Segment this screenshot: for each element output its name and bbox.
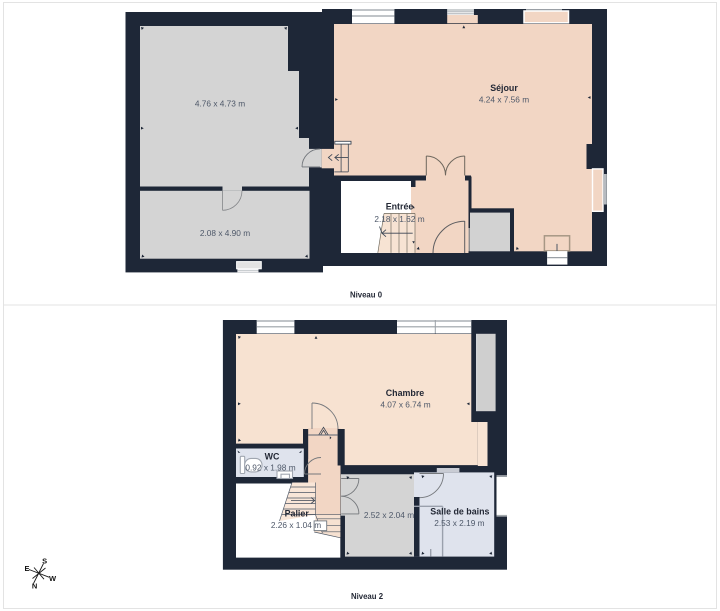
svg-text:Séjour: Séjour (490, 83, 518, 93)
svg-text:4.07 x 6.74 m: 4.07 x 6.74 m (380, 399, 430, 409)
svg-text:0.92 x 1.98 m: 0.92 x 1.98 m (245, 463, 295, 473)
svg-text:S: S (42, 556, 47, 565)
svg-text:Entrée: Entrée (386, 202, 414, 212)
svg-text:4.24 x 7.56 m: 4.24 x 7.56 m (479, 94, 529, 104)
svg-text:Niveau 0: Niveau 0 (350, 290, 383, 299)
svg-text:Niveau 2: Niveau 2 (351, 592, 384, 601)
svg-text:2.26 x 1.04 m: 2.26 x 1.04 m (271, 520, 321, 530)
svg-text:E: E (24, 564, 29, 573)
svg-text:2.52 x 2.04 m: 2.52 x 2.04 m (364, 510, 414, 520)
svg-text:Chambre: Chambre (386, 388, 425, 398)
svg-text:4.76 x 4.73 m: 4.76 x 4.73 m (195, 99, 245, 109)
svg-text:Salle de bains: Salle de bains (430, 507, 489, 517)
svg-text:2.08 x 4.90 m: 2.08 x 4.90 m (200, 228, 250, 238)
svg-text:2.53 x 2.19 m: 2.53 x 2.19 m (434, 518, 484, 528)
svg-text:Palier: Palier (285, 509, 310, 519)
svg-text:N: N (32, 582, 37, 591)
svg-text:2.18 x 1.62 m: 2.18 x 1.62 m (374, 214, 424, 224)
svg-text:W: W (49, 574, 57, 583)
svg-text:WC: WC (265, 452, 280, 462)
